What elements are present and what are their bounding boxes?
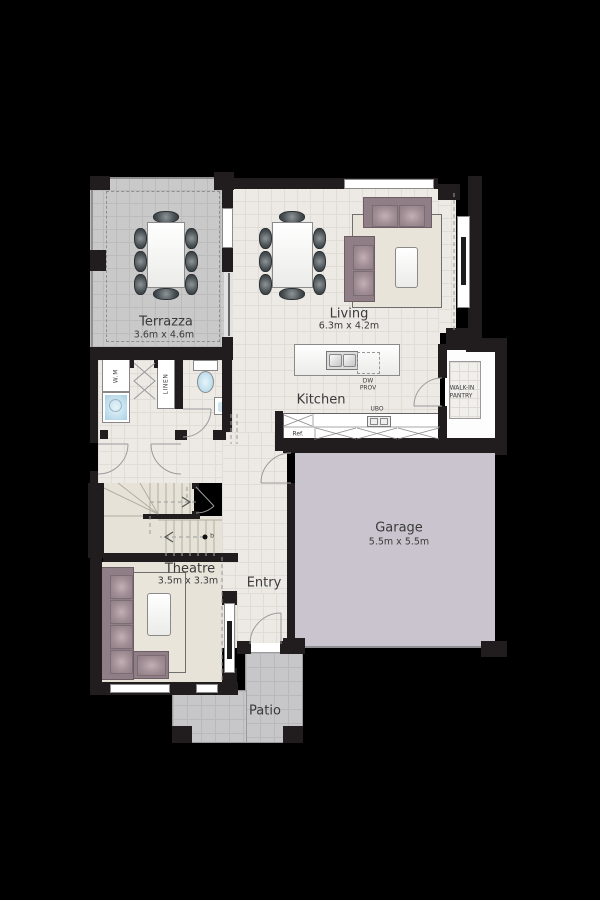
meter-label: b <box>210 533 214 540</box>
front-door <box>250 613 281 644</box>
pantry-label-line1: WALK-IN <box>450 385 475 392</box>
pantry-label-line2: PANTRY <box>450 393 473 400</box>
plan-linework <box>0 0 600 900</box>
patio-label: Patio <box>249 704 281 719</box>
powder-door <box>183 409 211 437</box>
side-door <box>98 444 128 474</box>
fridge-label: Ref. <box>292 431 303 438</box>
terrazza-label: Terrazza <box>139 315 193 330</box>
theatre-dims: 3.5m x 3.3m <box>158 576 218 587</box>
kitchen-label: Kitchen <box>297 393 346 408</box>
garage-label: Garage <box>375 521 423 536</box>
hall-door <box>151 444 181 474</box>
stair-treads <box>104 483 222 556</box>
living-label: Living <box>330 307 369 322</box>
floor-plan: Terrazza 3.6m x 4.6m Living 6.3m x 4.2m … <box>0 0 600 900</box>
theatre-label: Theatre <box>165 562 215 577</box>
oven-label: UBO <box>371 406 384 413</box>
entry-label: Entry <box>247 576 282 591</box>
pantry-door <box>414 378 442 406</box>
bench-linework <box>283 414 440 440</box>
linen-label: LINEN <box>163 373 170 394</box>
living-dims: 6.3m x 4.2m <box>319 321 379 332</box>
dishwasher-label-line2: PROV <box>360 385 376 392</box>
stair-door <box>196 487 214 513</box>
terrazza-dims: 3.6m x 4.6m <box>134 330 194 341</box>
garage-dims: 5.5m x 5.5m <box>369 537 429 548</box>
garage-door <box>261 453 291 483</box>
bifold-doors <box>134 363 155 399</box>
dishwasher-label-line1: DW <box>363 378 373 385</box>
washing-machine-label: W.M <box>113 369 120 383</box>
meter-dot <box>203 535 208 540</box>
